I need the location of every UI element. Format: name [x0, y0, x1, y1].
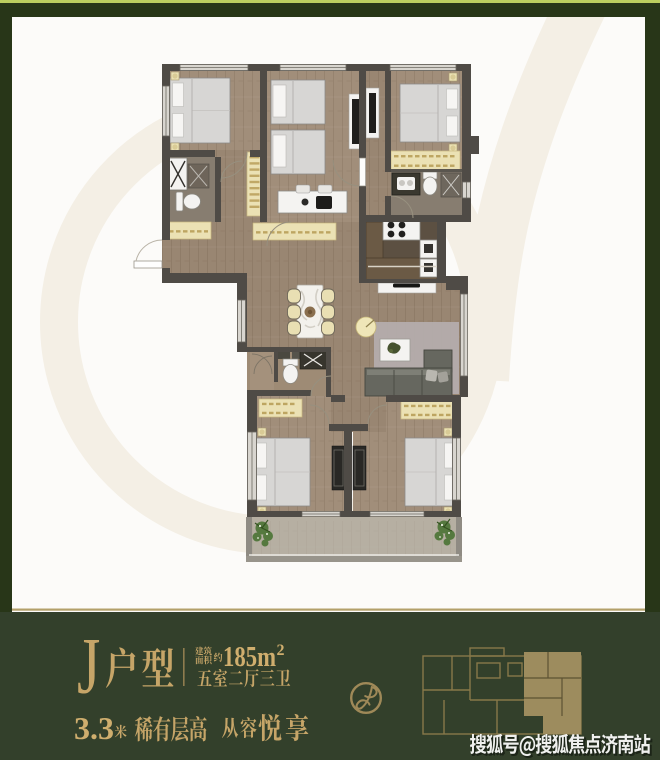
- svg-text:J: J: [77, 623, 100, 711]
- svg-text:3.3: 3.3: [74, 710, 114, 746]
- svg-text:185m: 185m: [223, 642, 276, 673]
- svg-text:2: 2: [277, 642, 285, 659]
